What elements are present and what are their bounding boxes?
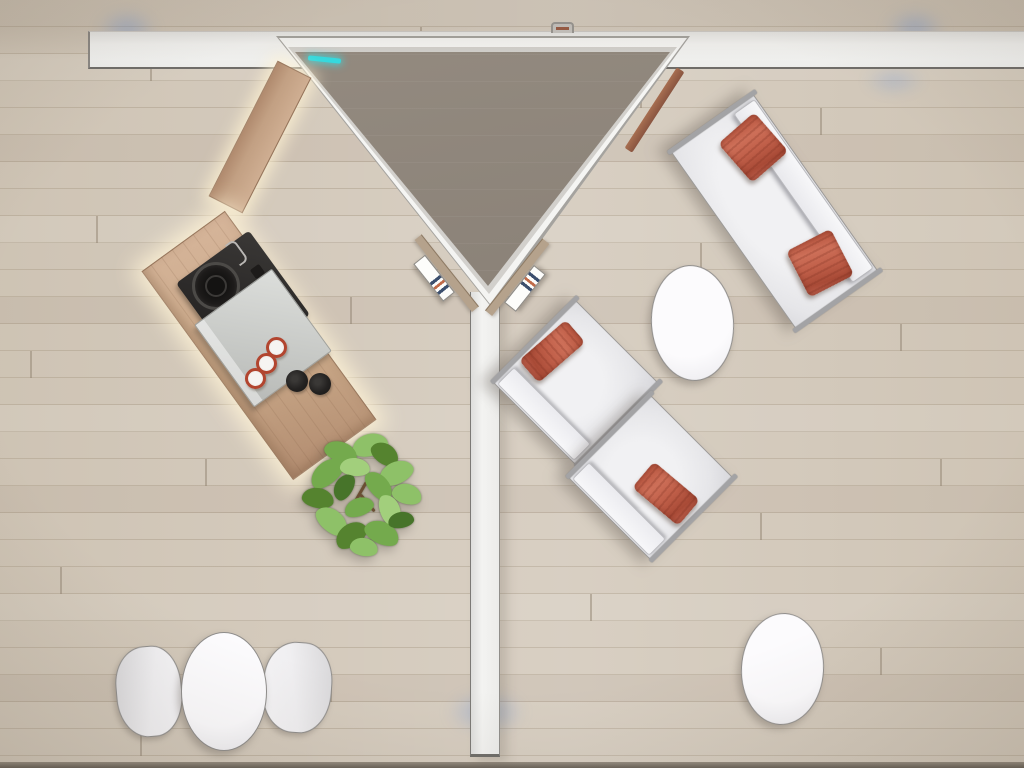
plank-seam [940, 459, 942, 486]
plank-seam [640, 81, 642, 108]
plank-seam [350, 297, 352, 324]
plank-row [0, 135, 1024, 162]
plank-seam [60, 567, 62, 594]
center-wall [470, 292, 500, 757]
plank-seam [96, 216, 98, 243]
blue-glow [862, 66, 926, 96]
black-bowl [309, 373, 331, 395]
plank-seam [760, 513, 762, 540]
round-table-bottom-left [181, 632, 267, 751]
plank-seam [880, 648, 882, 675]
plank-seam [900, 324, 902, 351]
plank-row [0, 405, 1024, 432]
plank-row [0, 594, 1024, 621]
plank-seam [30, 351, 32, 378]
plank-seam [820, 108, 822, 135]
rendered-scene [0, 0, 1024, 768]
plank-row [0, 486, 1024, 513]
top-wall [88, 31, 1024, 69]
plank-seam [590, 594, 592, 621]
espresso-cup [245, 368, 266, 389]
plank-seam [205, 459, 207, 486]
plank-row [0, 216, 1024, 243]
image-bottom-edge [0, 762, 1024, 768]
burner-ring [205, 275, 227, 297]
wall-bracket [551, 22, 574, 33]
plank-seam [540, 162, 542, 189]
bracket-pin [556, 27, 569, 30]
potted-plant [300, 432, 430, 562]
black-bowl [286, 370, 308, 392]
